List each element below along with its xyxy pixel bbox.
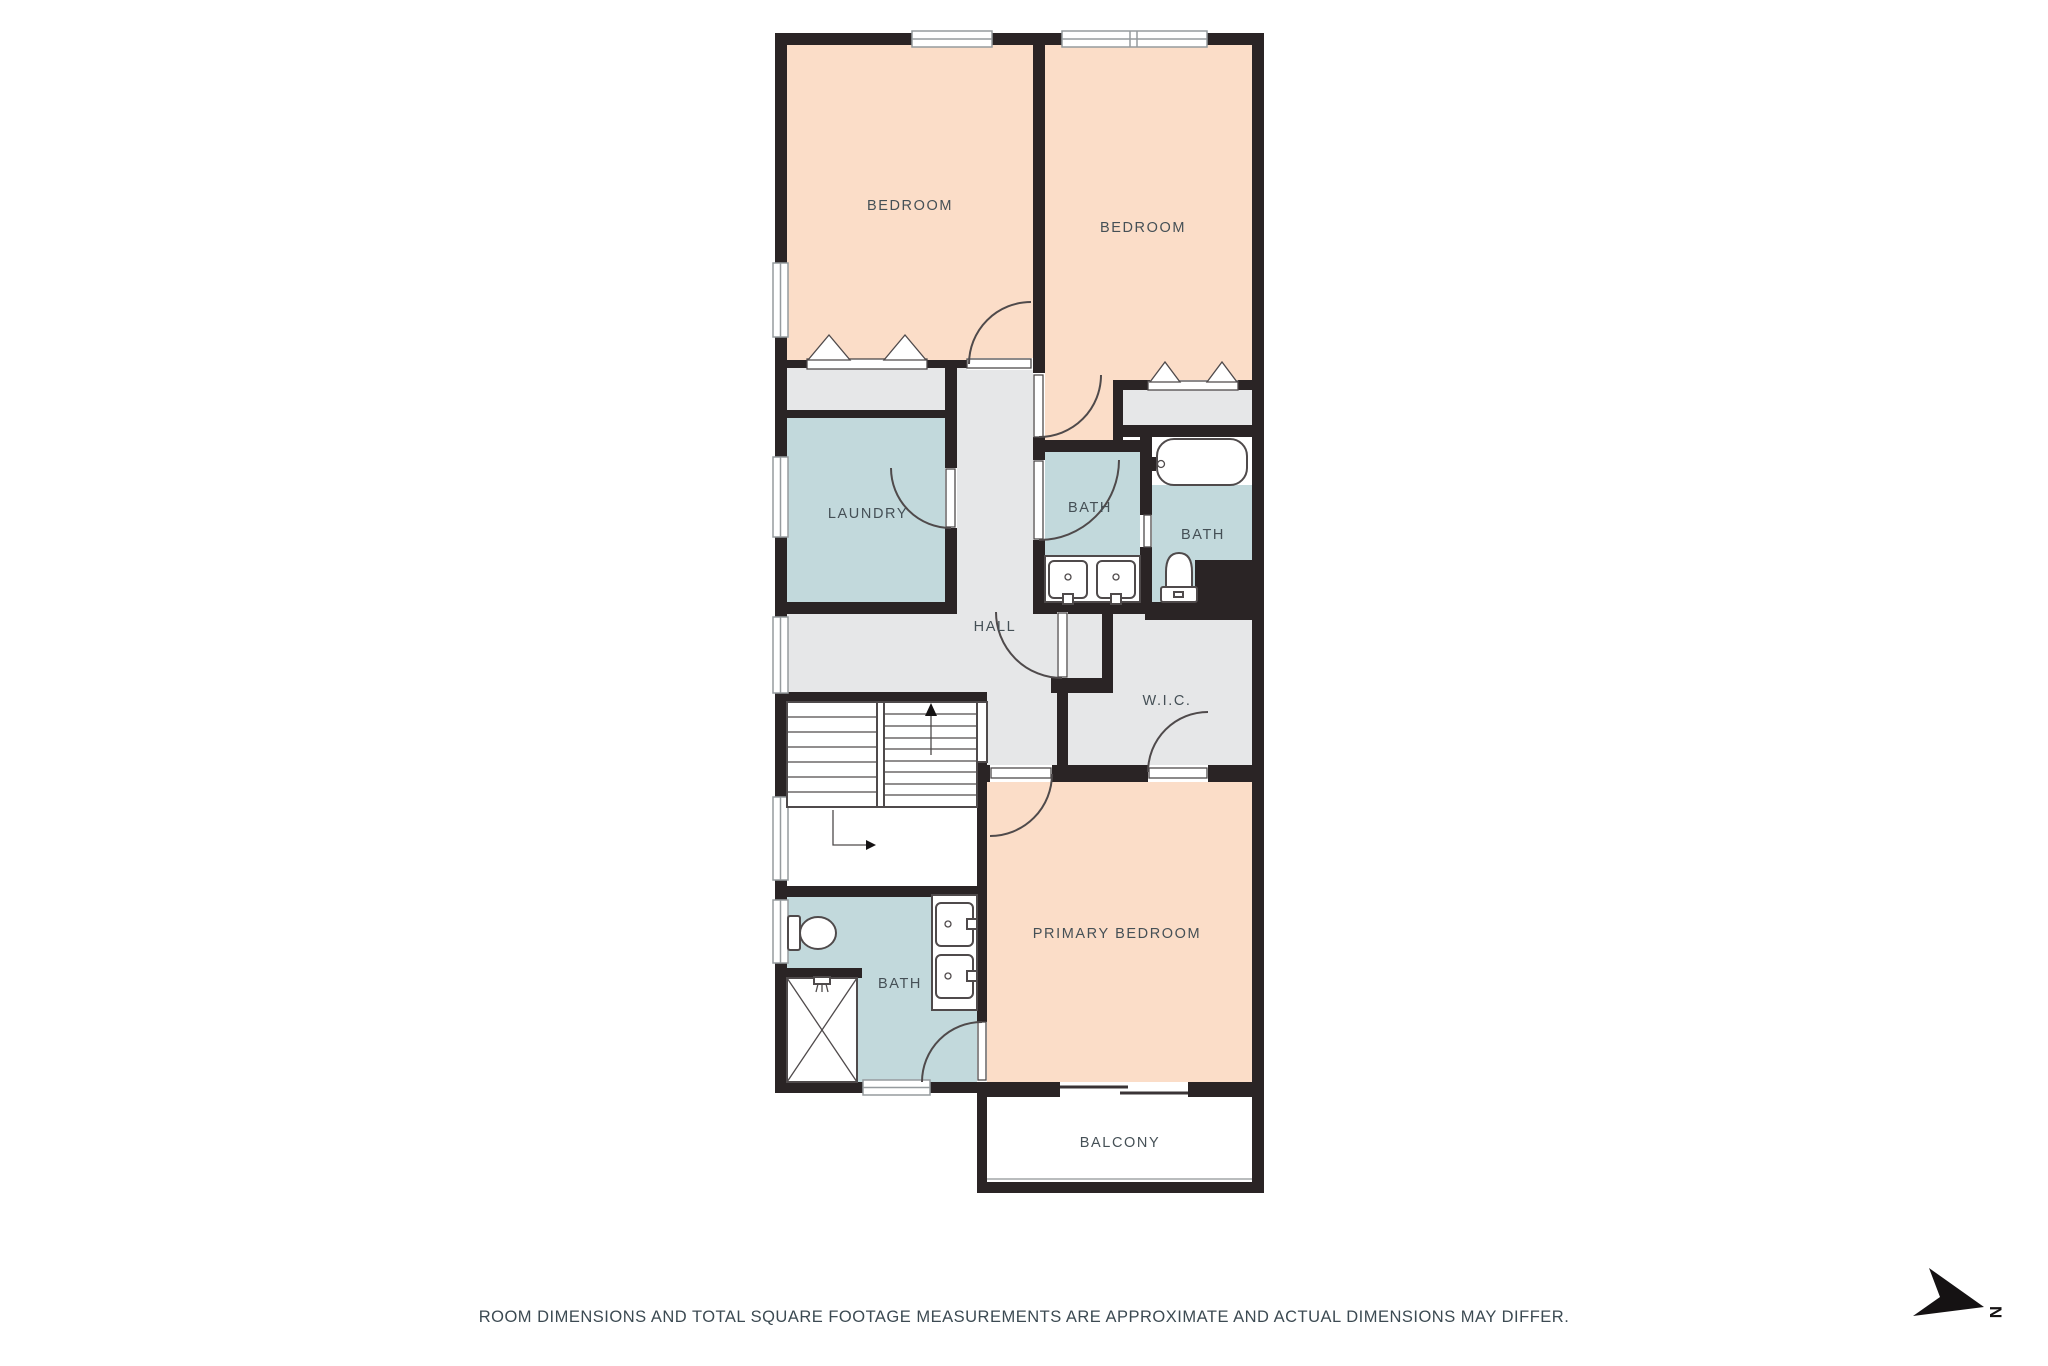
- room-label-bath-center: BATH: [1068, 500, 1112, 516]
- bathtub-icon: [1151, 439, 1247, 485]
- window: [773, 263, 788, 337]
- room-label-hall: HALL: [974, 619, 1017, 635]
- window: [863, 1080, 930, 1095]
- stairs: [787, 702, 987, 850]
- room-label-bath-lower: BATH: [878, 976, 922, 992]
- room-hall-fill: [787, 614, 1057, 692]
- room-label-primary-bedroom: PRIMARY BEDROOM: [1033, 926, 1202, 942]
- closet-left-fill: [787, 368, 945, 410]
- window-double: [1062, 31, 1207, 47]
- window: [773, 900, 788, 963]
- double-sink-vanity: [1045, 556, 1140, 604]
- stair-railing: [977, 702, 987, 762]
- room-bedroom-right-fill: [1045, 380, 1113, 440]
- room-wic-fill: [1068, 693, 1113, 765]
- room-label-wic: W.I.C.: [1142, 693, 1191, 709]
- room-label-bath-right: BATH: [1181, 527, 1225, 543]
- room-label-balcony: BALCONY: [1080, 1135, 1161, 1151]
- closet-right-fill: [1123, 390, 1252, 425]
- room-wic-fill: [1068, 612, 1102, 678]
- stairs-direction-arrow-icon: [833, 810, 876, 850]
- room-hall-fill: [987, 692, 1057, 765]
- double-sink-vanity: [932, 895, 977, 1010]
- room-label-laundry: LAUNDRY: [828, 506, 908, 522]
- plumbing-chase: [1195, 560, 1252, 602]
- window: [773, 617, 788, 693]
- room-label-bedroom-left: BEDROOM: [867, 198, 953, 214]
- window: [773, 797, 788, 880]
- window: [773, 457, 788, 537]
- window: [912, 31, 992, 47]
- toilet-icon: [788, 916, 836, 950]
- floor-plan-page: BEDROOM BEDROOM LAUNDRY BATH BATH HALL W…: [0, 0, 2048, 1366]
- sliding-door: [1060, 1082, 1188, 1097]
- room-hall-fill: [957, 368, 1033, 614]
- room-wic-fill: [1113, 614, 1252, 765]
- room-label-bedroom-right: BEDROOM: [1100, 220, 1186, 236]
- floor-plan-drawing: BEDROOM BEDROOM LAUNDRY BATH BATH HALL W…: [0, 0, 2048, 1366]
- door: [1140, 515, 1152, 547]
- room-bedroom-right-fill: [1045, 45, 1252, 380]
- disclaimer-text: ROOM DIMENSIONS AND TOTAL SQUARE FOOTAGE…: [0, 1308, 2048, 1327]
- shower-icon: [787, 977, 857, 1082]
- stair-divider: [877, 702, 884, 807]
